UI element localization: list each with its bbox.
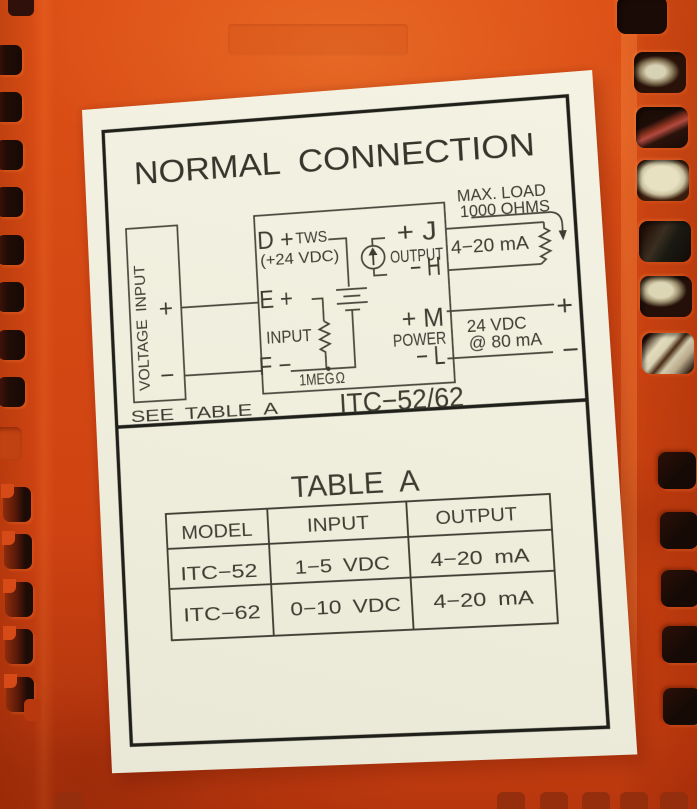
svg-text:NORMAL CONNECTION: NORMAL CONNECTION bbox=[133, 127, 536, 192]
svg-text:TWS: TWS bbox=[295, 228, 328, 248]
svg-text:TABLE A: TABLE A bbox=[290, 464, 421, 505]
svg-text:1−5 VDC: 1−5 VDC bbox=[294, 552, 391, 578]
svg-text:OUTPUT: OUTPUT bbox=[435, 503, 518, 528]
svg-text:−: − bbox=[561, 333, 580, 366]
svg-text:− L: − L bbox=[415, 342, 446, 372]
svg-text:+: + bbox=[555, 289, 574, 322]
svg-text:E +: E + bbox=[259, 285, 294, 315]
svg-text:MODEL: MODEL bbox=[181, 519, 253, 544]
svg-text:4−20 mA: 4−20 mA bbox=[433, 586, 535, 612]
svg-text:−: − bbox=[159, 361, 175, 390]
svg-text:0−10 VDC: 0−10 VDC bbox=[290, 594, 402, 620]
svg-text:ITC−52/62: ITC−52/62 bbox=[338, 381, 464, 420]
svg-text:+: + bbox=[158, 294, 174, 323]
svg-text:− H: − H bbox=[409, 253, 442, 283]
svg-text:F −: F − bbox=[258, 351, 292, 381]
svg-text:ITC−62: ITC−62 bbox=[183, 601, 261, 626]
svg-text:1MEG Ω: 1MEG Ω bbox=[299, 370, 346, 389]
svg-text:ITC−52: ITC−52 bbox=[180, 560, 258, 585]
svg-text:4−20 mA: 4−20 mA bbox=[450, 232, 529, 258]
svg-text:INPUT: INPUT bbox=[306, 512, 369, 536]
svg-text:@ 80 mA: @ 80 mA bbox=[468, 329, 543, 354]
svg-text:INPUT: INPUT bbox=[266, 324, 313, 348]
svg-text:VOLTAGE INPUT: VOLTAGE INPUT bbox=[132, 265, 154, 392]
svg-text:4−20 mA: 4−20 mA bbox=[430, 544, 531, 570]
